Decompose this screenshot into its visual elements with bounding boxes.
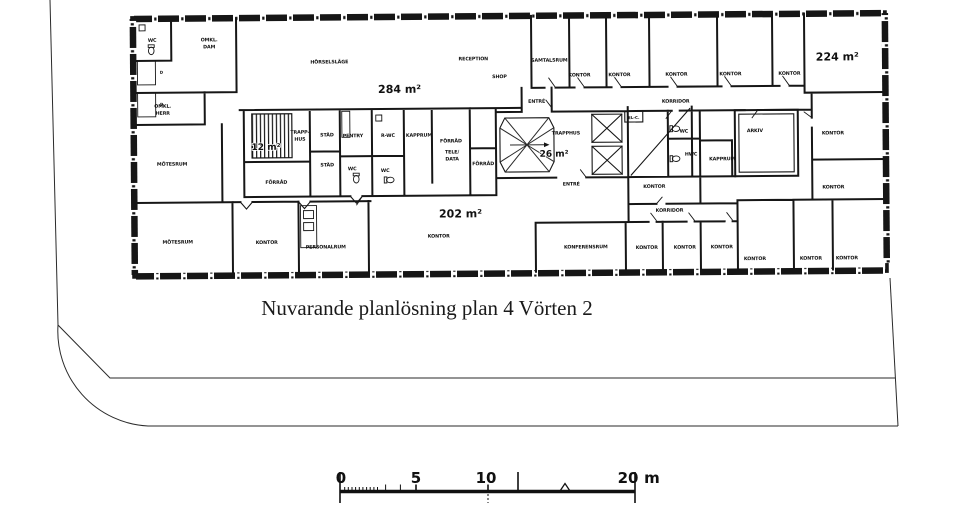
scale-tick-20: 20 xyxy=(618,469,639,487)
elevator-shaft-2 xyxy=(592,146,622,174)
room-label-motesrum-n: MÖTESRUM xyxy=(157,161,188,168)
room-label-hwc: HWC xyxy=(685,152,698,158)
room-label-wc-e: WC xyxy=(680,129,689,135)
room-label-kontor-s6: KONTOR xyxy=(836,255,858,261)
room-label-korridor-s: KORRIDOR xyxy=(656,208,684,214)
room-label-wc-1: WC xyxy=(348,166,357,172)
room-label-kontor-s3: KONTOR xyxy=(711,244,733,250)
locker-mark-1: D xyxy=(160,70,164,75)
facade-top xyxy=(134,10,883,22)
room-label-omkl-dam-1: OMKL. xyxy=(201,37,218,43)
room-label-wc-2: WC xyxy=(381,168,390,174)
room-label-kontor-s4: KONTOR xyxy=(744,256,766,262)
stair-center xyxy=(500,118,554,172)
room-label-kontor-e1: KONTOR xyxy=(822,130,844,136)
room-label-konferensrum: KONFERENSRUM xyxy=(564,244,608,250)
floorplan-page: WC OMKL. DAM OMKL. HERR D D MÖTESRUM MÖT… xyxy=(0,0,976,520)
room-label-rwc: R-WC xyxy=(381,133,396,139)
room-label-wc-nw: WC xyxy=(148,38,157,44)
room-label-stad-1: STÄD xyxy=(320,131,334,138)
room-label-omkl-herr-2: HERR xyxy=(156,111,171,117)
scale-tick-0: 0 xyxy=(336,469,346,487)
room-label-stad-2: STÄD xyxy=(320,161,334,168)
room-label-forrad-teledata-1: FÖRRÅD xyxy=(440,137,462,144)
room-label-trapphus-c: TRAPPHUS xyxy=(552,130,581,136)
room-label-entre-n: ENTRÉ xyxy=(528,97,545,105)
scale-tick-10: 10 xyxy=(476,469,497,487)
arkiv-walls xyxy=(735,110,799,176)
scale-bar: 0 5 10 20 m xyxy=(336,469,660,503)
facade-left xyxy=(130,19,139,275)
room-label-forrad-c: FÖRRÅD xyxy=(472,160,494,167)
facade-right xyxy=(882,13,890,263)
area-label-284: 284 m² xyxy=(378,83,421,96)
room-label-open-area: HÖRSELSLÄGE xyxy=(310,58,348,65)
room-label-reception: RECEPTION xyxy=(459,56,489,62)
room-label-omkl-dam-2: DAM xyxy=(203,44,216,50)
room-label-forrad-teledata-3: DATA xyxy=(445,156,459,162)
room-label-kapprum-w: KAPPRUM xyxy=(406,133,432,139)
room-label-kontor-n5: KONTOR xyxy=(778,71,800,77)
room-label-kontor-s1: KONTOR xyxy=(636,245,658,251)
area-label-224: 224 m² xyxy=(816,50,859,63)
room-label-forrad-teledata-2: TELE/ xyxy=(445,149,460,155)
elevator-shaft-1 xyxy=(592,114,622,142)
area-label-202: 202 m² xyxy=(439,207,482,220)
interior-walls xyxy=(134,13,887,275)
scale-unit: m xyxy=(644,469,660,487)
room-label-arkiv: ARKIV xyxy=(747,128,764,134)
room-label-kontor-s2: KONTOR xyxy=(674,245,696,251)
room-label-kontor-n2: KONTOR xyxy=(608,72,630,78)
facade-bottom xyxy=(136,267,885,279)
room-label-trapphus-w-2: HUS xyxy=(294,137,306,143)
room-label-forrad-w: FÖRRÅD xyxy=(265,179,287,186)
room-label-samtalsrum: SAMTALSRUM xyxy=(531,58,568,64)
room-label-shop: SHOP xyxy=(492,74,507,80)
floorplan-drawing: WC OMKL. DAM OMKL. HERR D D MÖTESRUM MÖT… xyxy=(0,0,976,520)
room-label-personalrum: PERSONALRUM xyxy=(306,244,346,250)
room-label-kontor-n4: KONTOR xyxy=(719,71,741,77)
room-label-kontor-n1: KONTOR xyxy=(568,72,590,78)
plan-title: Nuvarande planlösning plan 4 Vörten 2 xyxy=(261,296,592,320)
room-label-kontor-open: KONTOR xyxy=(428,233,450,239)
room-label-elc: EL-C. xyxy=(628,115,640,120)
room-label-pentry: PENTRY xyxy=(343,133,364,139)
room-label-kontor-n3: KONTOR xyxy=(665,72,687,78)
room-label-kapprum-e: KAPPRUM xyxy=(709,156,735,162)
room-label-motesrum-s: MÖTESRUM xyxy=(163,238,194,245)
room-label-entre-s: ENTRÉ xyxy=(563,179,580,187)
room-label-kontor-e2: KONTOR xyxy=(822,184,844,190)
area-label-12: 12 m² xyxy=(251,143,280,153)
scale-tick-5: 5 xyxy=(411,469,421,487)
area-label-26: 26 m² xyxy=(540,150,569,160)
room-label-korridor-n: KORRIDOR xyxy=(662,99,690,105)
room-label-kontor-sw: KONTOR xyxy=(256,240,278,246)
room-label-kontor-s5: KONTOR xyxy=(800,256,822,262)
room-label-trapphus-w-1: TRAPP- xyxy=(290,130,309,136)
room-label-kontor-c: KONTOR xyxy=(643,184,665,190)
